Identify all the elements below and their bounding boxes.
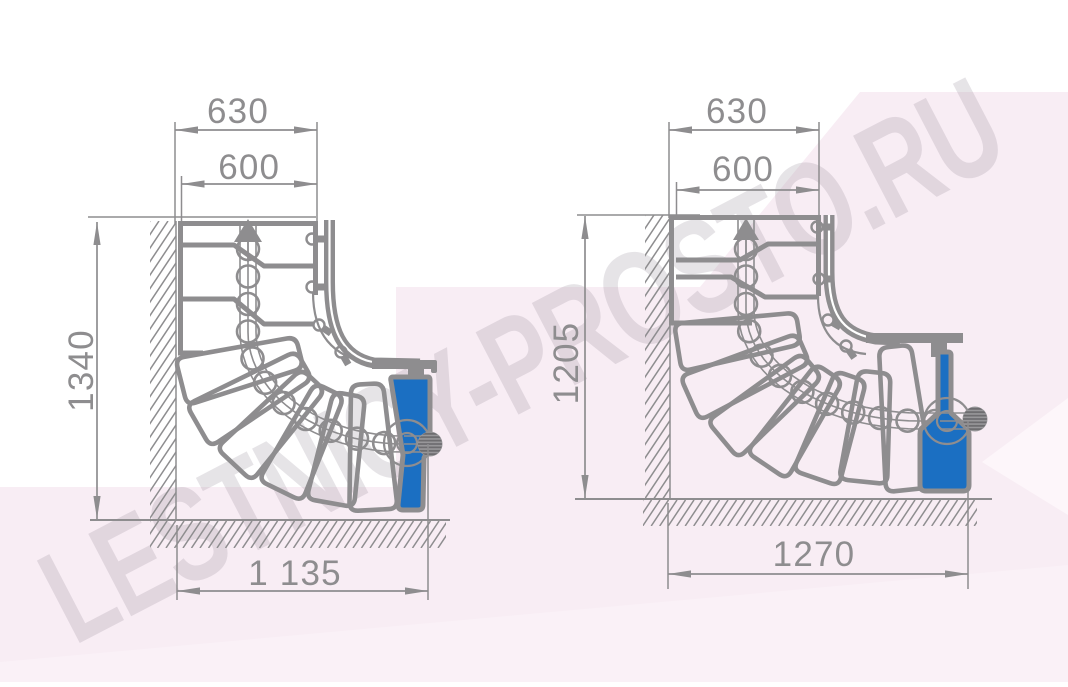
svg-text:630: 630: [207, 92, 269, 131]
svg-text:1340: 1340: [62, 329, 101, 412]
svg-text:630: 630: [706, 92, 768, 131]
svg-text:600: 600: [712, 150, 774, 189]
svg-text:1 135: 1 135: [248, 554, 342, 593]
svg-text:1205: 1205: [547, 322, 586, 405]
svg-text:600: 600: [218, 148, 280, 187]
svg-text:1270: 1270: [773, 535, 856, 574]
